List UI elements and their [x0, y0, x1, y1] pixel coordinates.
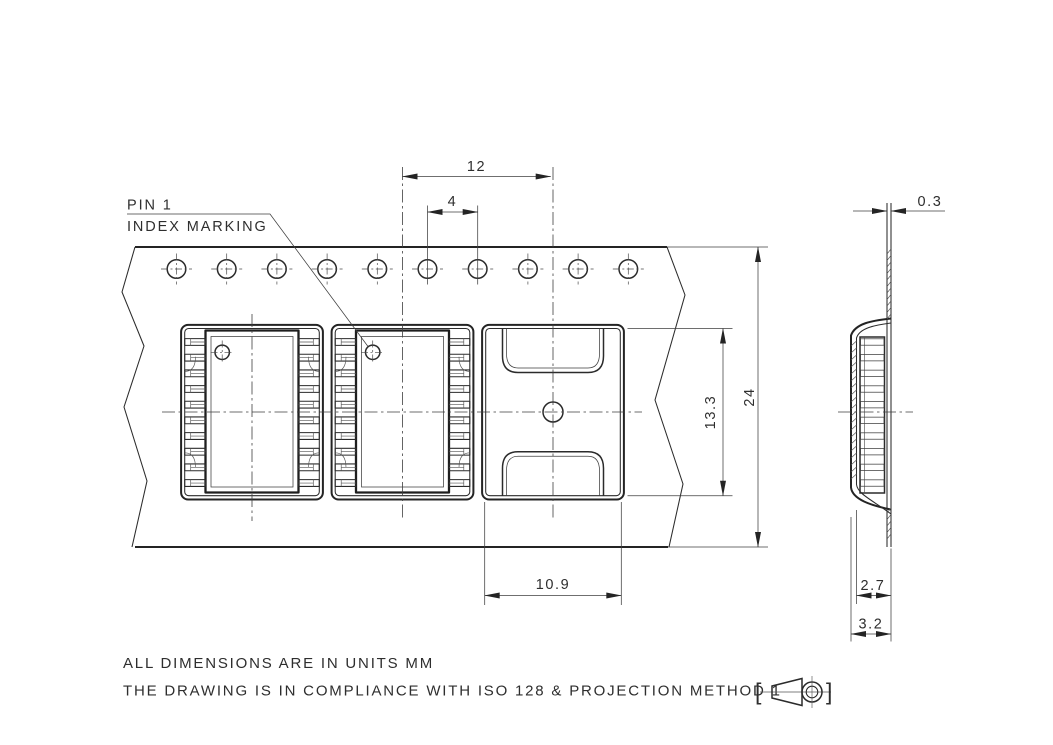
pin1-label-line2: INDEX MARKING [127, 219, 268, 235]
bracket-close: ] [826, 679, 832, 705]
dim-pocket-depth-inner: 2.7 [861, 578, 886, 594]
technical-drawing: 12 4 10.9 13.3 24 PIN 1 INDEX MARKING [0, 0, 1053, 745]
dim-sprocket-pitch: 4 [448, 194, 458, 210]
dim-pocket-length: 13.3 [703, 395, 719, 430]
bracket-open: [ [755, 679, 762, 705]
drawing-canvas: 12 4 10.9 13.3 24 PIN 1 INDEX MARKING [0, 0, 1053, 745]
dim-pocket-width: 10.9 [536, 577, 571, 593]
dim-pocket-depth-overall: 3.2 [859, 617, 884, 633]
dim-pocket-pitch: 12 [467, 159, 486, 175]
note-units: ALL DIMENSIONS ARE IN UNITS MM [123, 655, 434, 672]
note-compliance: THE DRAWING IS IN COMPLIANCE WITH ISO 12… [123, 683, 782, 700]
dim-tape-thickness: 0.3 [918, 194, 943, 210]
dim-tape-width: 24 [742, 387, 758, 406]
pin1-label-line1: PIN 1 [127, 198, 173, 214]
